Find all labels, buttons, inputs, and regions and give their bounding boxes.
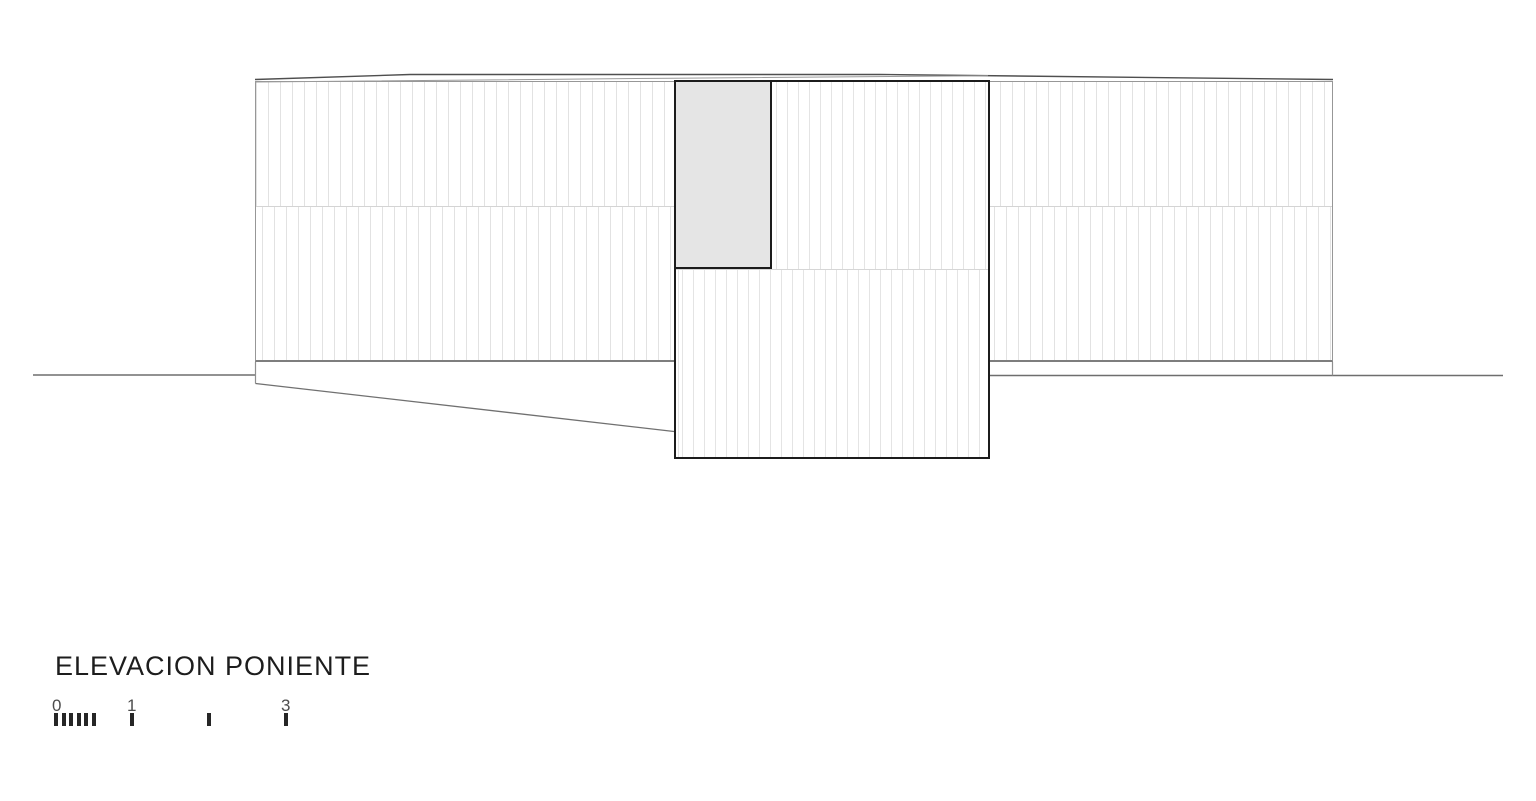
entry-tower-volume: [674, 80, 990, 459]
scale-tick-0-3: [77, 713, 81, 726]
drawing-title: ELEVACION PONIENTE: [55, 651, 371, 682]
scale-tick-0-5: [92, 713, 96, 726]
ramp-line: [256, 384, 675, 432]
scale-bar: 0 1 3: [48, 696, 308, 732]
scale-tick-0: [54, 713, 58, 726]
elevation-drawing-sheet: ELEVACION PONIENTE 0 1 3: [0, 0, 1536, 801]
tower-lower-cladding: [676, 269, 988, 457]
tower-upper-cladding: [772, 82, 988, 269]
scale-tick-3: [284, 713, 288, 726]
scale-tick-0-1: [62, 713, 66, 726]
tower-gray-panel: [676, 82, 772, 269]
scale-tick-0-2: [69, 713, 73, 726]
scale-tick-0-4: [84, 713, 88, 726]
scale-tick-2: [207, 713, 211, 726]
scale-tick-1: [130, 713, 134, 726]
